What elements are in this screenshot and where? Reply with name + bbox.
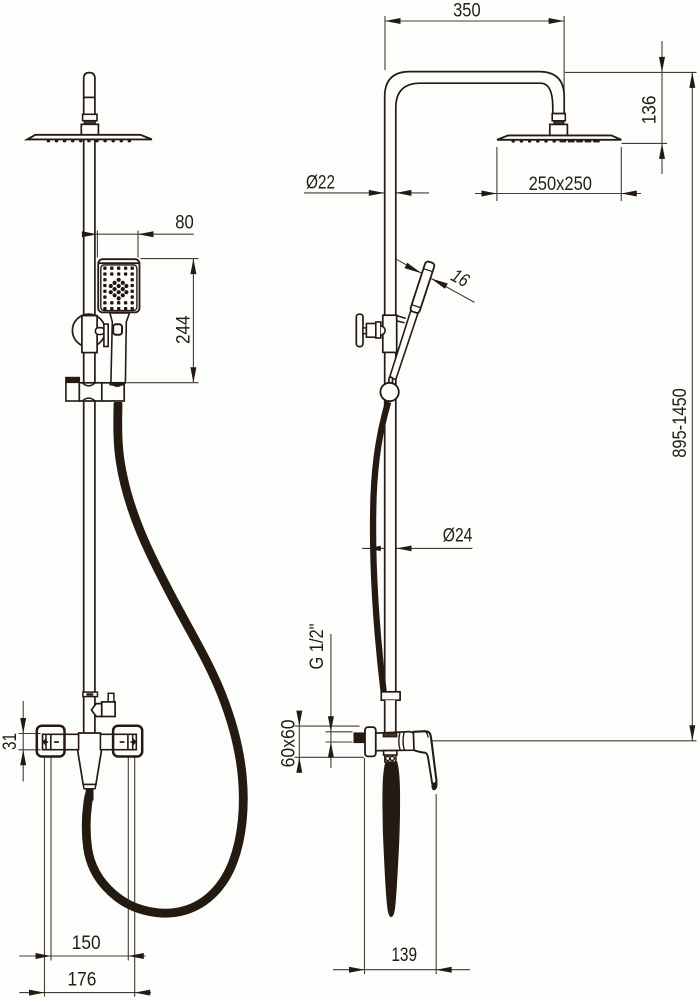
svg-text:16: 16 bbox=[447, 265, 472, 292]
svg-text:250x250: 250x250 bbox=[529, 174, 592, 195]
svg-text:31: 31 bbox=[0, 733, 21, 750]
svg-text:Ø24: Ø24 bbox=[443, 526, 473, 547]
svg-text:176: 176 bbox=[68, 970, 97, 991]
svg-text:80: 80 bbox=[175, 213, 194, 234]
svg-text:139: 139 bbox=[391, 945, 417, 966]
svg-text:Ø22: Ø22 bbox=[306, 172, 335, 193]
svg-text:244: 244 bbox=[173, 315, 194, 344]
svg-text:350: 350 bbox=[453, 0, 481, 21]
svg-text:136: 136 bbox=[639, 96, 660, 125]
svg-text:60x60: 60x60 bbox=[279, 719, 300, 767]
svg-text:150: 150 bbox=[72, 933, 101, 954]
svg-text:G 1/2": G 1/2" bbox=[307, 624, 328, 670]
svg-text:895-1450: 895-1450 bbox=[670, 388, 691, 458]
